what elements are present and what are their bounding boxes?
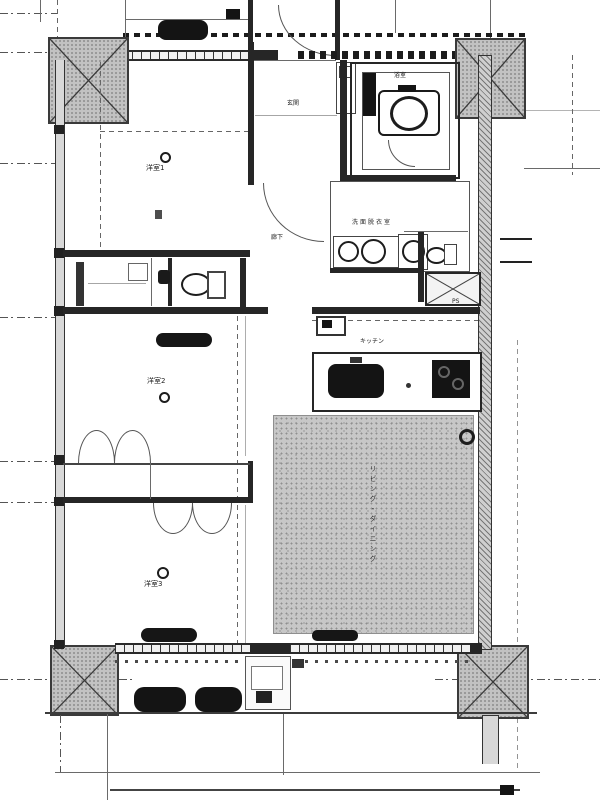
corridor-west-wall [248,42,254,185]
kitchen-sink [328,364,384,398]
counter-dot [406,383,411,388]
washroom-label: 洗面脱衣室 [352,219,392,227]
dim-line [0,317,57,318]
ceiling-drop-line [237,316,238,645]
room-number-mark [160,152,171,163]
washroom-south-wall [330,268,424,273]
wc1-east-wall [240,258,246,308]
ceiling-rose-mark [459,429,475,445]
dim-line [0,502,57,503]
vanity-sink [338,241,359,262]
kitchen-faucet-icon [350,357,362,363]
entrance-wall [248,0,253,44]
dim-tick [40,0,41,22]
dim-tick [500,261,532,263]
western1-south-wall [63,250,250,257]
label-bar [312,630,358,641]
meter-box-icon [226,9,240,19]
ceiling-drop-line [100,62,101,250]
dim-tick-block [500,785,514,795]
drain-mark [292,659,304,668]
room-number-mark [157,567,169,579]
drain-box-icon [256,691,272,703]
closet-shelf-box [128,263,148,281]
column-bottom-left [50,645,119,716]
western2-label: 洋室2 [147,377,165,385]
dim-line [0,13,57,14]
label-bar [141,628,197,642]
kitchen-label: キッチン [360,338,384,346]
wc-north-wall [404,231,468,232]
left-outer-wall [55,60,65,648]
wc1-door-blob [158,270,170,284]
closet-partition [151,258,152,306]
label-bar [156,333,212,347]
bifold-door-arc [78,430,115,463]
room-number-mark [159,392,170,403]
toilet-tank-1 [207,271,226,299]
living-label: リビング・ダイニング [369,465,377,615]
dim-line [0,163,57,164]
hallway-label: 廊下 [271,234,283,242]
outlet-mark [155,210,162,219]
bath-west-wall [340,60,347,175]
porch-edge [395,0,396,33]
column-x-icon [459,647,527,717]
floor-plan: 玄関 洋室1 廊下 浴室 洗面脱衣室 [0,0,600,800]
bottom-wall [250,643,290,654]
pipe-space-label: PS [452,298,459,306]
wc-west-wall [418,232,424,302]
bifold-door-arc [192,503,232,534]
column-x-icon [52,647,117,714]
stove-burner [452,378,464,390]
ceiling-drop-line [100,131,248,132]
dim-line [572,55,573,175]
western3-label: 洋室3 [144,580,162,588]
genkan-floor-line [255,115,337,116]
floor-hatch-handle [322,320,332,328]
bifold-door-arc [153,503,193,534]
dim-line [60,715,61,772]
dim-line [0,461,57,462]
sliding-door-line [245,505,246,645]
bottom-wall [470,643,482,654]
bifold-door-arc [114,430,151,463]
divider-inner-box [251,666,283,690]
bathtub-bowl [390,96,428,131]
entrance-step-line [254,60,336,61]
western1-label: 洋室1 [146,164,164,172]
balcony-rail [45,712,537,714]
dim-line [55,772,540,773]
window-top-right [298,51,456,59]
washer-drum [361,239,386,264]
wall-stub [482,715,499,764]
toilet-tank-2 [444,244,457,265]
dim-line [524,110,600,111]
bathroom-label: 浴室 [394,72,406,80]
closet-partition [150,463,151,499]
entrance-door-arc [278,5,336,56]
window-top-left [123,50,248,61]
sliding-door-line [245,316,246,456]
wall-joint [54,125,64,134]
column-bottom-right [457,645,529,719]
entrance-label: 玄関 [287,100,299,108]
dim-line [110,789,520,791]
closet-side-panel [76,262,84,306]
gas-stove [432,360,470,398]
ld-north-wall [312,307,480,314]
bath-faucet-icon [398,85,416,92]
dim-line [524,168,600,169]
ac-unit-icon [158,20,208,40]
window-bottom-left [115,643,250,654]
dim-line [0,52,48,53]
stove-burner [438,366,450,378]
corridor-south-wall [63,307,268,314]
closet-wall [63,463,250,465]
dim-tick [500,238,532,240]
ac-unit-icon [134,687,186,712]
drain-pipe-line [283,714,284,775]
window-bottom-right [290,643,470,654]
dim-line [57,0,58,37]
wall-joint [54,640,64,649]
dim-line [107,714,108,800]
ac-unit-icon [195,687,242,712]
hanger-rod [88,283,146,284]
